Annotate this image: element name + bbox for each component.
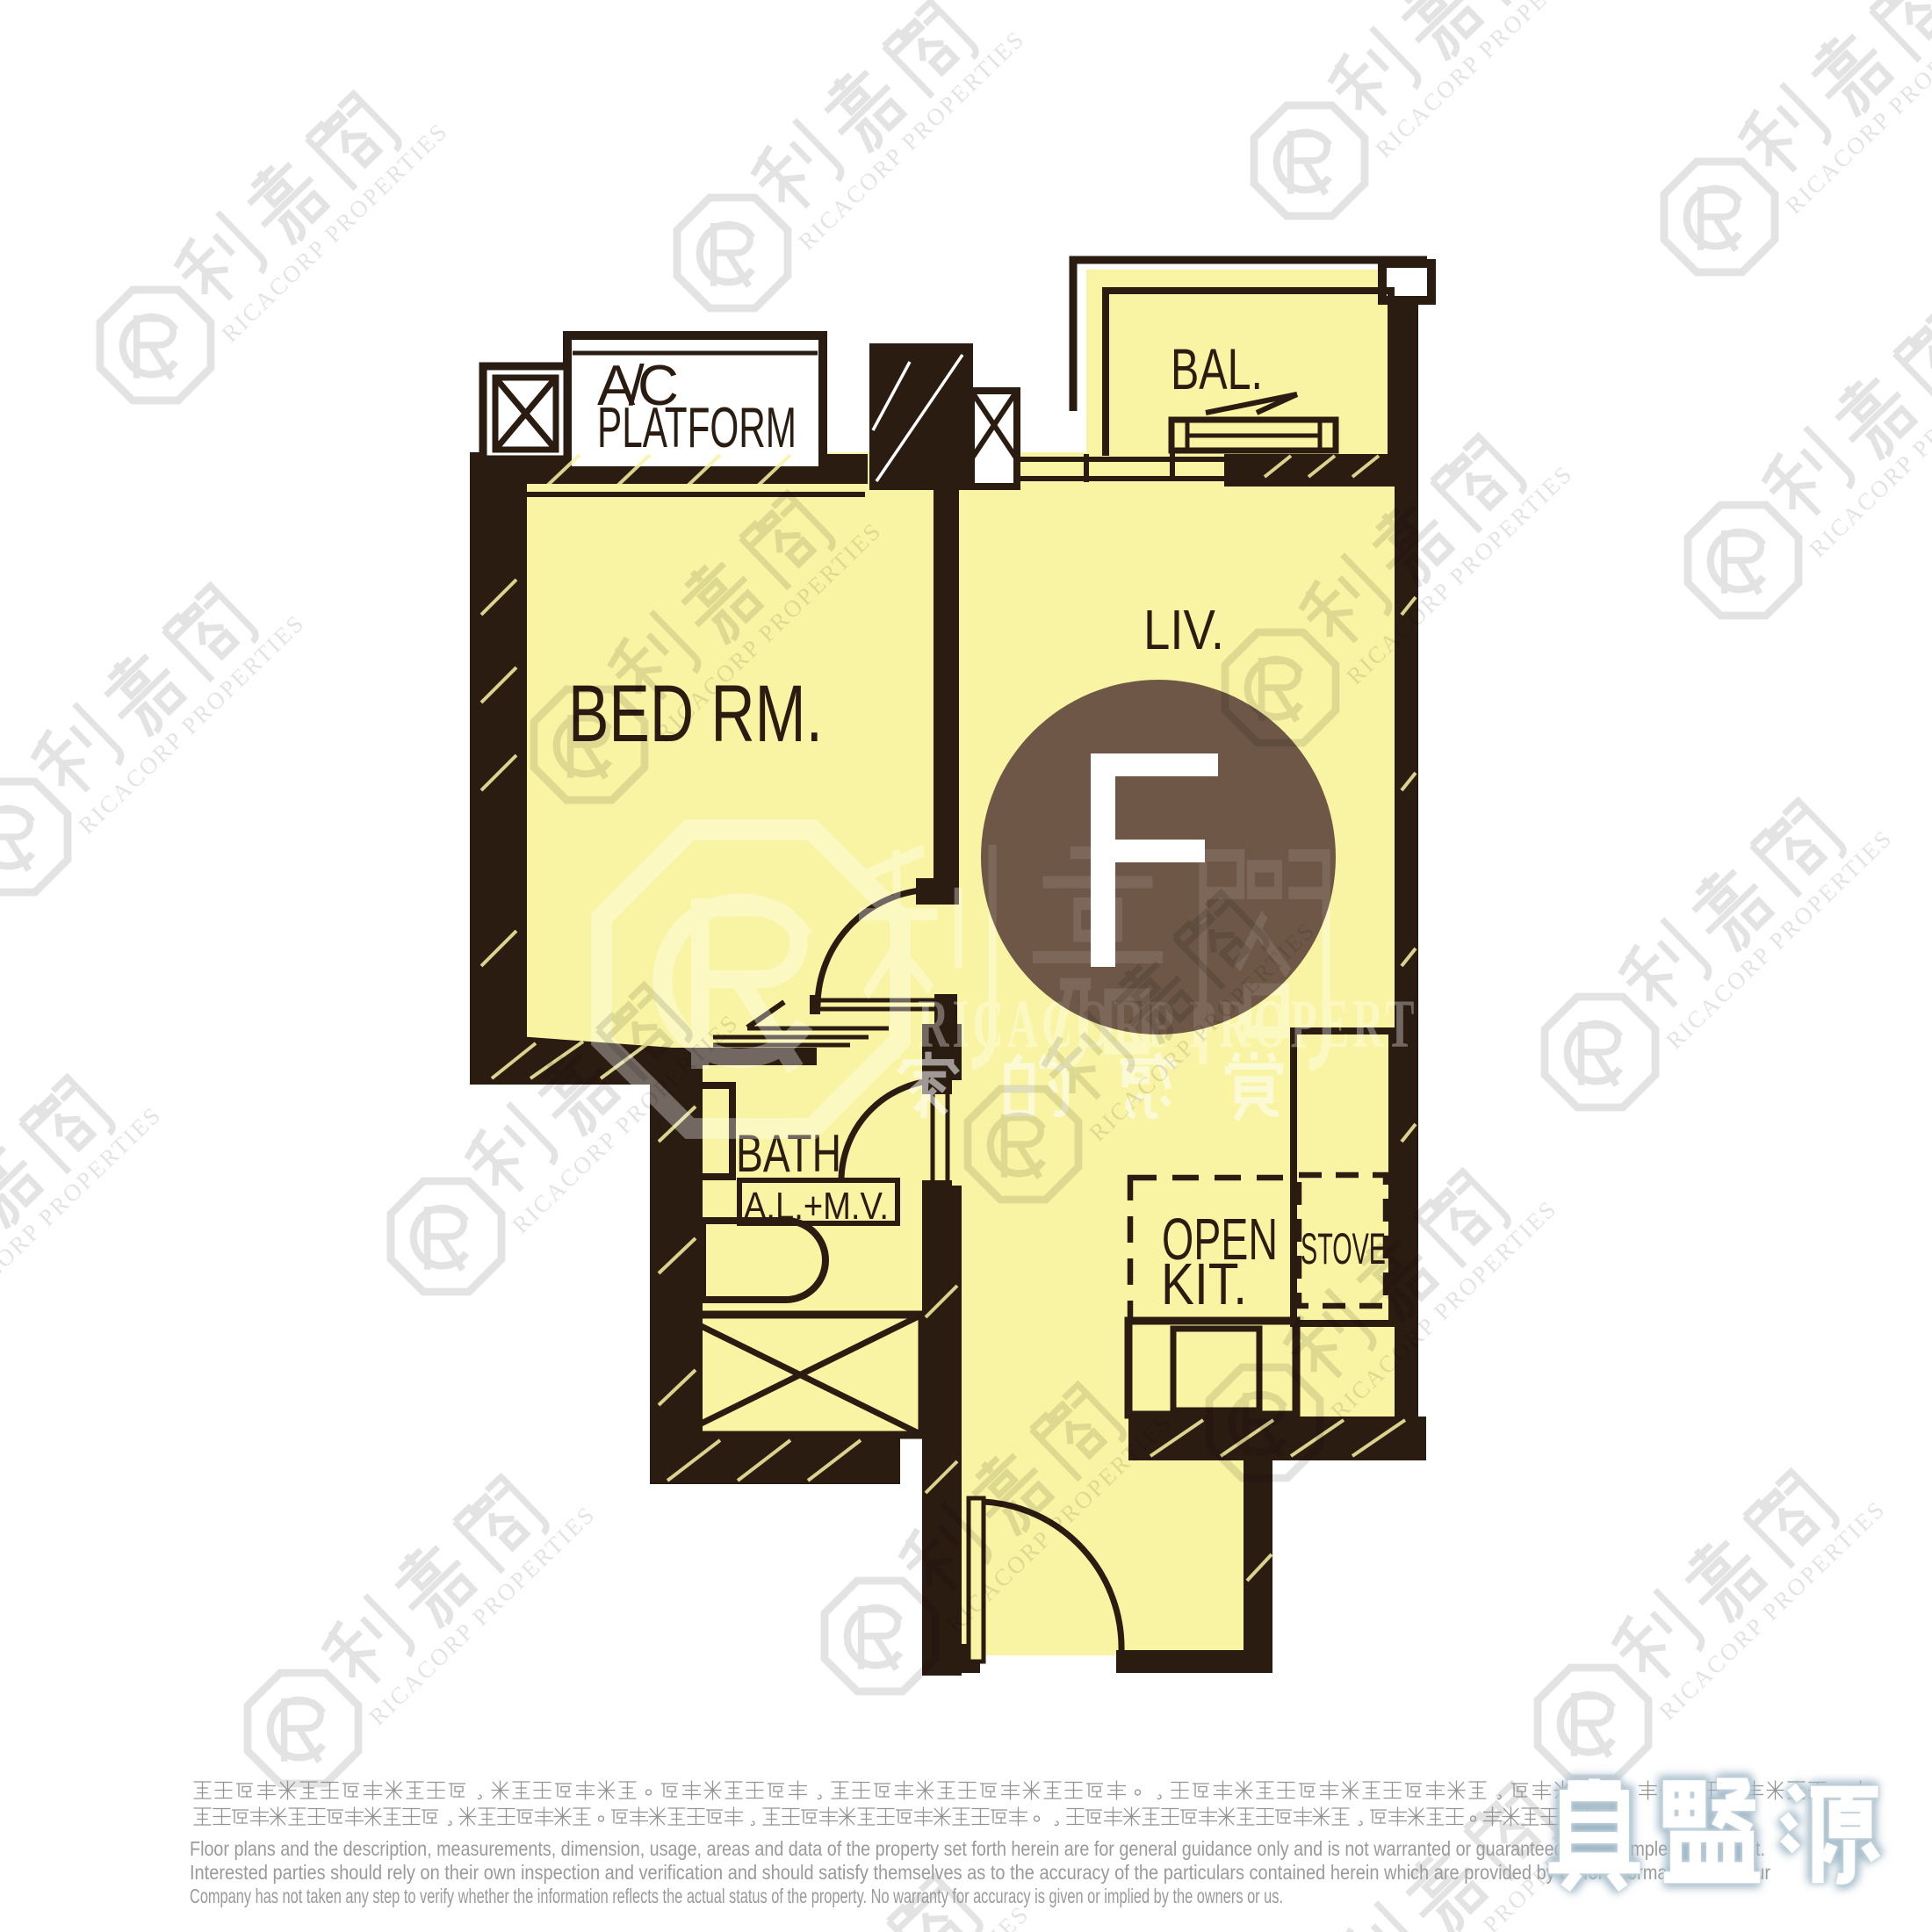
svg-text:BAL.: BAL. bbox=[1171, 336, 1263, 401]
svg-text:KIT.: KIT. bbox=[1161, 1251, 1247, 1317]
svg-text:Floor plans and the descriptio: Floor plans and the description, measure… bbox=[190, 1837, 1765, 1860]
svg-text:LIV.: LIV. bbox=[1143, 598, 1224, 661]
svg-text:Company has not taken any step: Company has not taken any step to verify… bbox=[190, 1885, 1283, 1907]
svg-text:Interested parties should rely: Interested parties should rely on their … bbox=[190, 1861, 1770, 1884]
svg-text:PLATFORM: PLATFORM bbox=[597, 395, 797, 459]
svg-text:A.L.+M.V.: A.L.+M.V. bbox=[744, 1185, 889, 1228]
